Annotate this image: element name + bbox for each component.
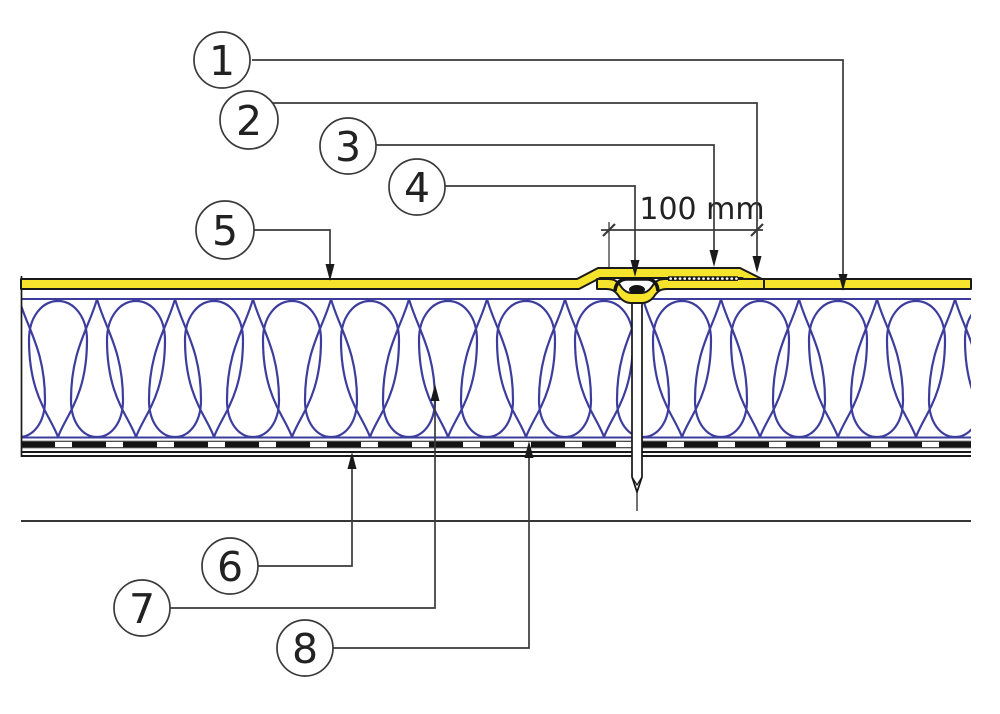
fastener-screw [632, 292, 642, 511]
callout-number: 1 [209, 37, 235, 85]
screw-shaft [632, 292, 642, 492]
callout-number: 7 [129, 585, 155, 633]
callout-bubble-5: 5 [196, 201, 254, 259]
callout-number: 8 [292, 625, 318, 673]
callout-bubble-1: 1 [194, 32, 250, 88]
insulation-batt-hatch [21, 299, 971, 438]
callout-bubble-2: 2 [220, 91, 278, 149]
callout-bubble-6: 6 [202, 538, 258, 594]
callout-number: 2 [236, 97, 262, 145]
construction-detail-drawing: 100 mm 1 2 3 [0, 0, 1000, 714]
callout-bubble-3: 3 [320, 118, 376, 174]
callout-number: 5 [212, 207, 238, 255]
callout-bubble-7: 7 [114, 580, 170, 636]
dimension-label: 100 mm [639, 192, 764, 227]
detail-canvas: 100 mm 1 2 3 [0, 0, 1000, 714]
callout-number: 3 [335, 123, 361, 171]
screw-head [629, 285, 645, 294]
callout-bubble-8: 8 [277, 620, 333, 676]
callout-bubble-4: 4 [389, 159, 445, 215]
callout-number: 6 [217, 543, 243, 591]
callout-number: 4 [404, 164, 430, 212]
